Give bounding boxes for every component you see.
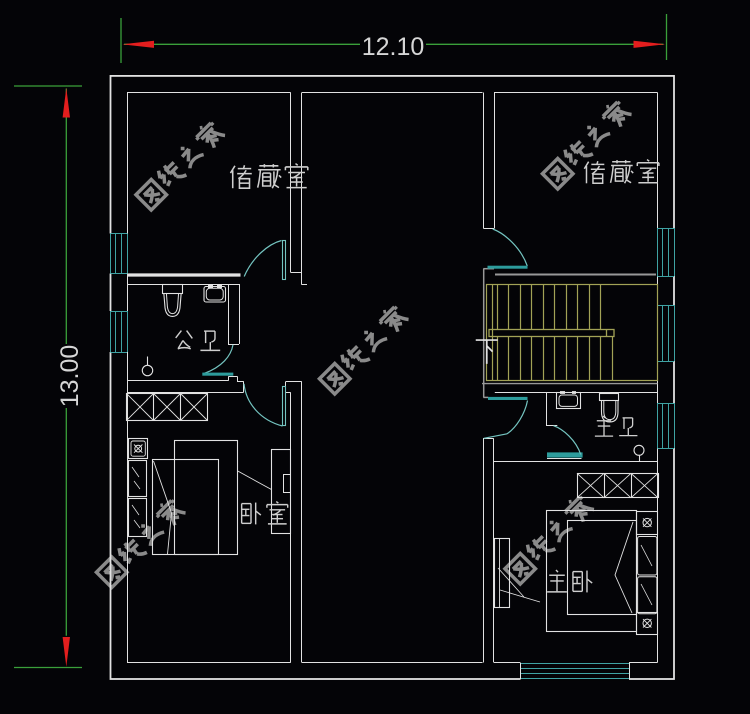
- svg-text:12.10: 12.10: [362, 33, 425, 61]
- svg-text:13.00: 13.00: [56, 345, 84, 408]
